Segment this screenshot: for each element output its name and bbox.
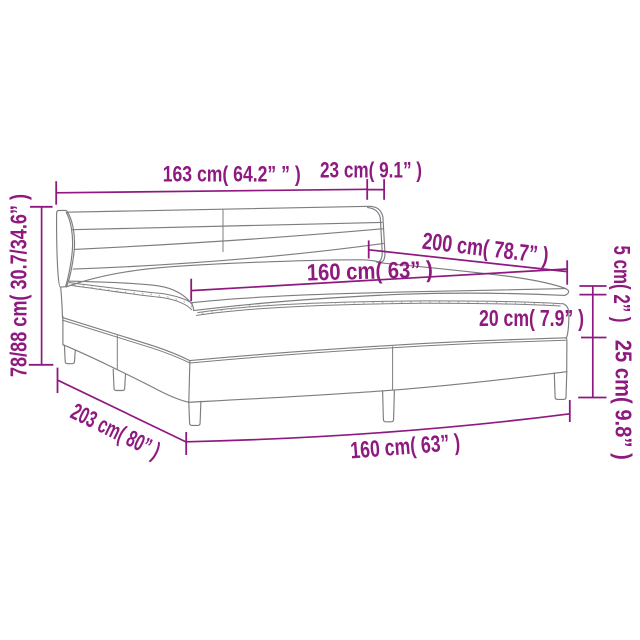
svg-text:5 cm( 2” ): 5 cm( 2” ) bbox=[609, 246, 635, 323]
svg-text:160 cm( 63” ): 160 cm( 63” ) bbox=[306, 256, 433, 285]
svg-text:78/88 cm( 30.7/34.6” ): 78/88 cm( 30.7/34.6” ) bbox=[6, 194, 32, 377]
svg-text:163 cm( 64.2” ” ): 163 cm( 64.2” ” ) bbox=[163, 162, 301, 187]
svg-text:23 cm( 9.1” ): 23 cm( 9.1” ) bbox=[320, 158, 422, 183]
svg-text:25 cm( 9.8” ): 25 cm( 9.8” ) bbox=[611, 340, 637, 460]
svg-text:20 cm( 7.9” ): 20 cm( 7.9” ) bbox=[479, 305, 584, 331]
